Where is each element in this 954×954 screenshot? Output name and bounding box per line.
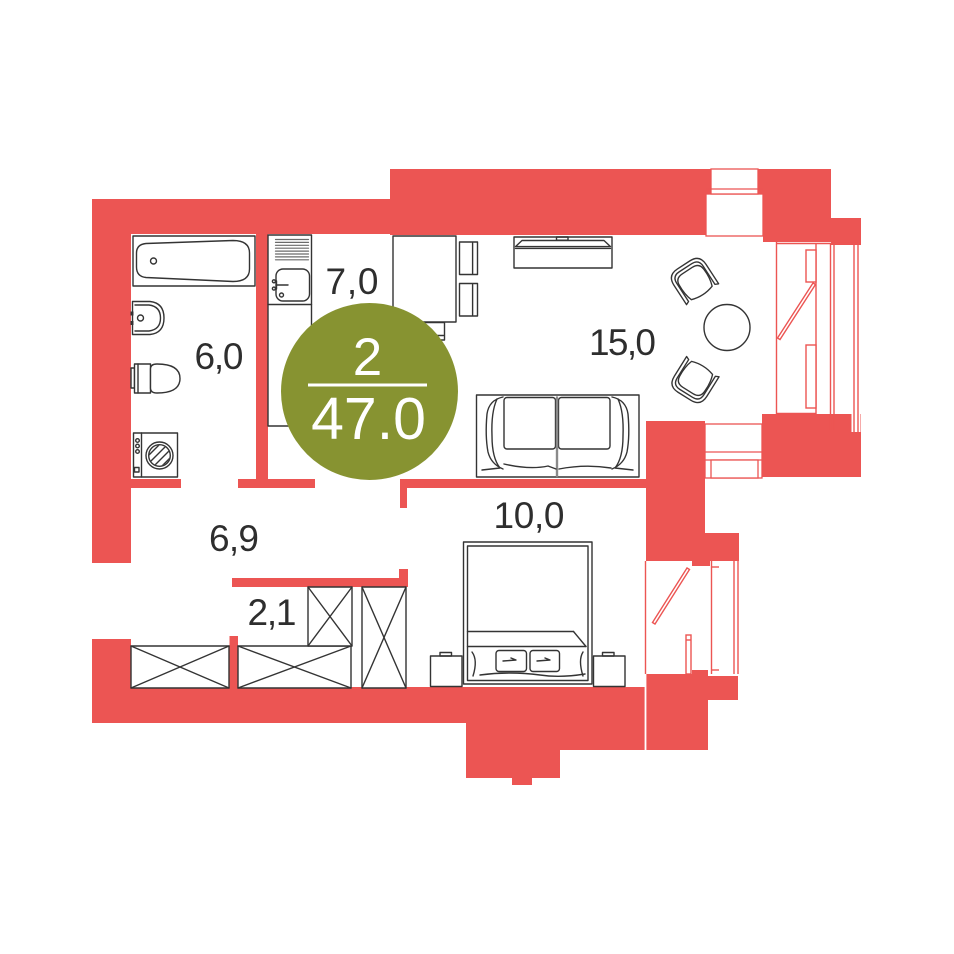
svg-text:15,0: 15,0 (589, 322, 656, 363)
svg-text:2: 2 (353, 328, 382, 387)
svg-text:7,0: 7,0 (326, 261, 379, 302)
svg-text:47.0: 47.0 (311, 386, 426, 452)
svg-text:6,0: 6,0 (195, 336, 244, 377)
svg-text:6,9: 6,9 (209, 518, 259, 559)
svg-text:10,0: 10,0 (494, 495, 565, 536)
svg-text:2,1: 2,1 (248, 592, 297, 633)
